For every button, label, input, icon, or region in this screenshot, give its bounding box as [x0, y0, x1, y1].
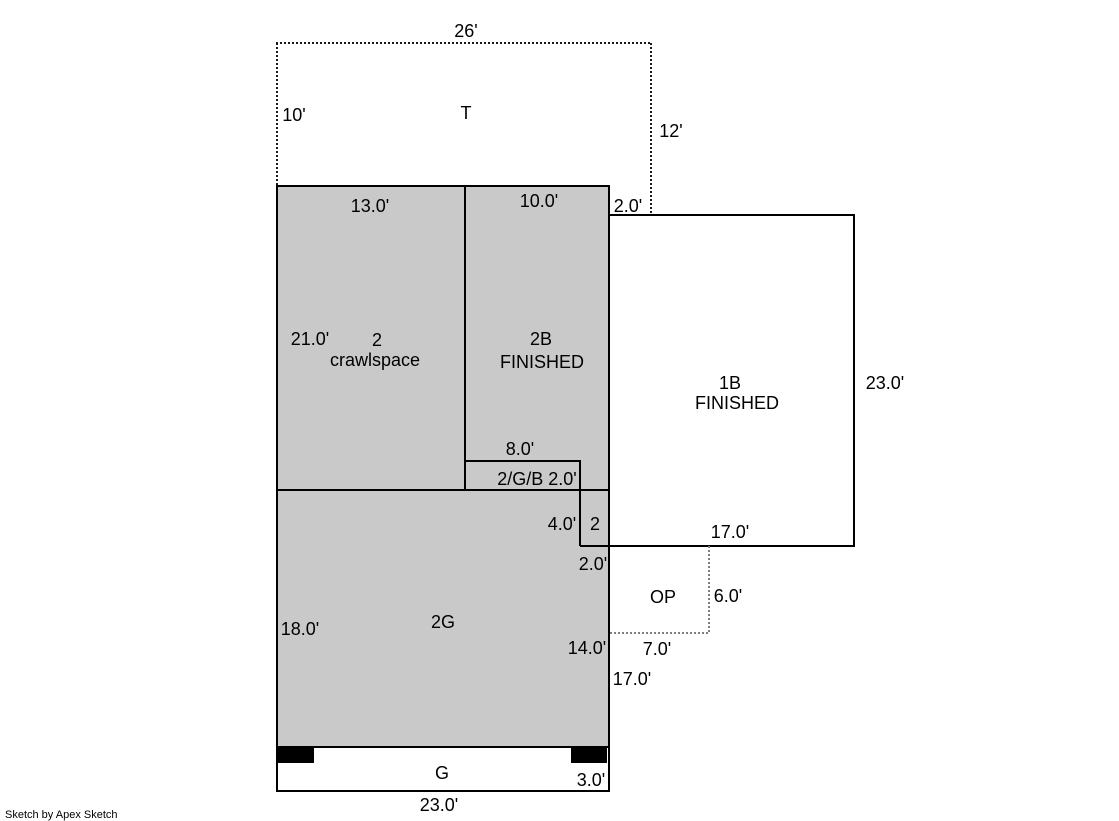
svg-text:2.0': 2.0' — [614, 196, 642, 216]
svg-text:1B: 1B — [719, 373, 741, 393]
svg-text:2/G/B 2.0': 2/G/B 2.0' — [497, 469, 576, 489]
svg-text:10.0': 10.0' — [520, 191, 558, 211]
svg-text:FINISHED: FINISHED — [695, 393, 779, 413]
svg-text:18.0': 18.0' — [281, 619, 319, 639]
svg-text:2.0': 2.0' — [579, 554, 607, 574]
svg-text:2: 2 — [590, 514, 600, 534]
svg-text:G: G — [435, 763, 449, 783]
svg-text:FINISHED: FINISHED — [500, 352, 584, 372]
svg-text:12': 12' — [659, 121, 682, 141]
svg-text:23.0': 23.0' — [866, 373, 904, 393]
svg-text:T: T — [461, 103, 472, 123]
svg-text:21.0': 21.0' — [291, 329, 329, 349]
svg-text:Sketch by Apex Sketch: Sketch by Apex Sketch — [5, 809, 118, 821]
svg-text:4.0': 4.0' — [548, 514, 576, 534]
svg-text:2B: 2B — [530, 329, 552, 349]
svg-text:crawlspace: crawlspace — [330, 350, 420, 370]
svg-text:8.0': 8.0' — [506, 439, 534, 459]
svg-text:14.0': 14.0' — [568, 638, 606, 658]
svg-text:17.0': 17.0' — [711, 522, 749, 542]
svg-text:26': 26' — [454, 21, 477, 41]
svg-text:2G: 2G — [431, 612, 455, 632]
svg-text:7.0': 7.0' — [643, 639, 671, 659]
svg-text:2: 2 — [372, 330, 382, 350]
svg-text:OP: OP — [650, 587, 676, 607]
svg-text:23.0': 23.0' — [420, 795, 458, 815]
svg-text:17.0': 17.0' — [613, 669, 651, 689]
svg-text:13.0': 13.0' — [351, 196, 389, 216]
svg-text:6.0': 6.0' — [714, 586, 742, 606]
svg-text:3.0': 3.0' — [577, 770, 605, 790]
svg-text:10': 10' — [282, 105, 305, 125]
